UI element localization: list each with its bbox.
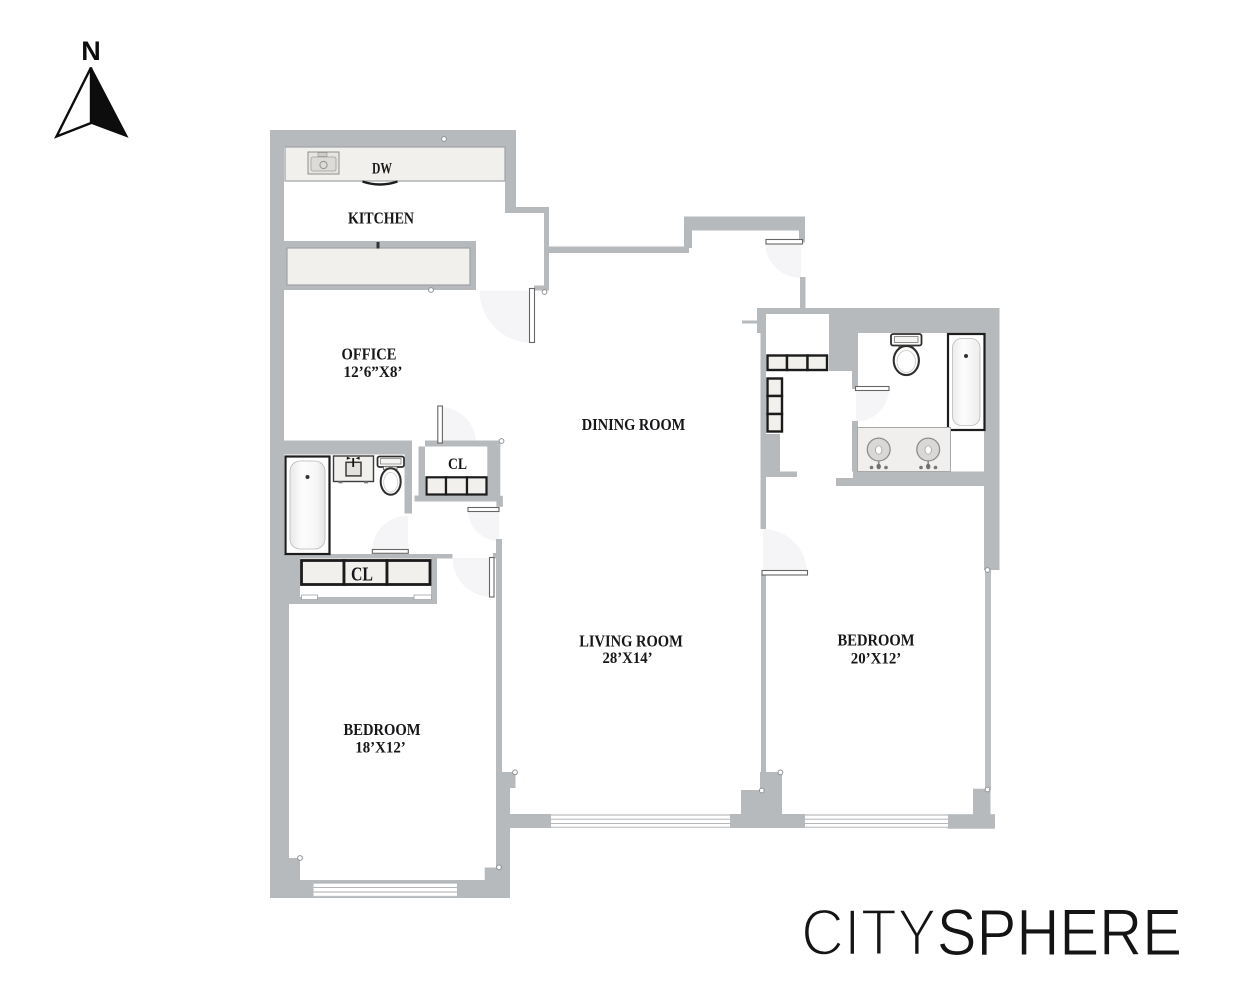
svg-text:KITCHEN: KITCHEN (348, 209, 414, 228)
svg-text:DW: DW (372, 161, 392, 178)
svg-text:BEDROOM: BEDROOM (838, 631, 915, 650)
svg-text:LIVING ROOM: LIVING ROOM (579, 631, 683, 650)
svg-text:N: N (81, 36, 101, 66)
svg-text:CL: CL (351, 564, 373, 586)
svg-text:OFFICE: OFFICE (342, 345, 397, 364)
svg-text:28’X14’: 28’X14’ (603, 650, 653, 667)
svg-text:CITYSPHERE: CITYSPHERE (801, 895, 1182, 969)
svg-text:CL: CL (448, 456, 467, 473)
svg-text:DINING ROOM: DINING ROOM (582, 415, 686, 434)
svg-text:12’6”X8’: 12’6”X8’ (344, 364, 403, 381)
svg-text:18’X12’: 18’X12’ (355, 739, 406, 756)
svg-text:BEDROOM: BEDROOM (344, 720, 421, 739)
svg-text:20’X12’: 20’X12’ (851, 650, 902, 667)
